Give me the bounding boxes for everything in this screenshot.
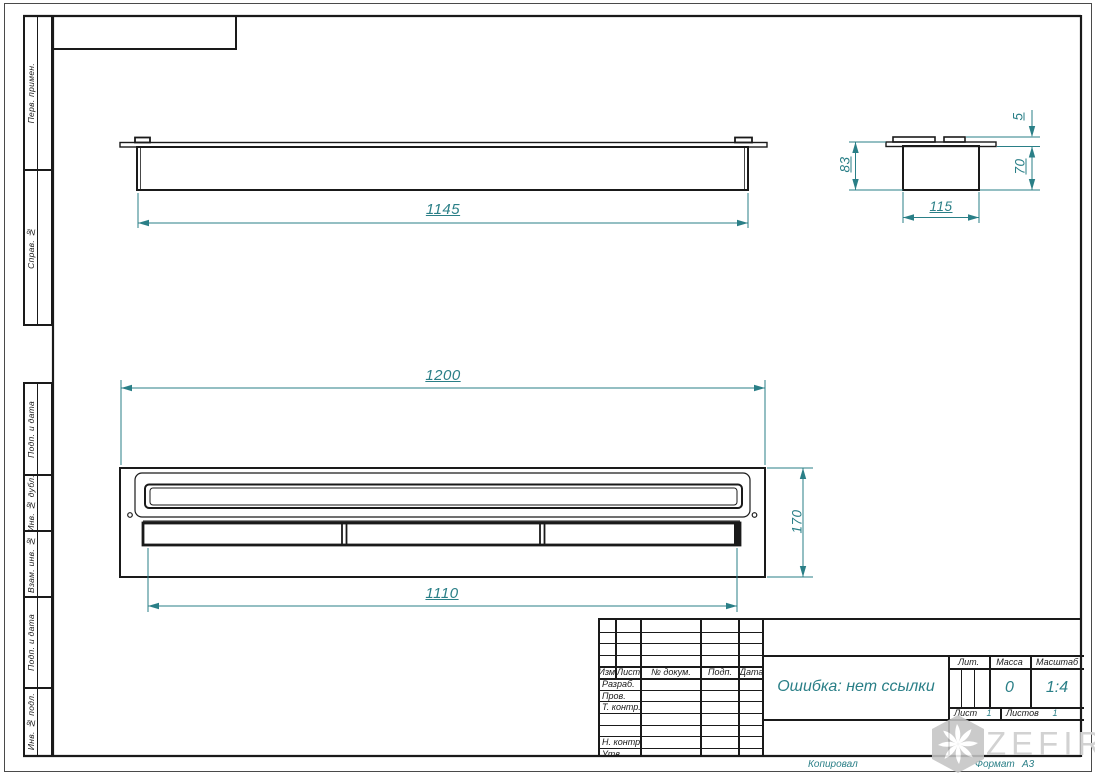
- dim-text-side-body-width: 115: [916, 199, 966, 214]
- dimension-70: [980, 147, 1040, 191]
- stamp-label: Инв. № дубл.: [26, 475, 36, 532]
- drawing-sheet: 1145 1200 1110 115 170 83 70 5 Перв. при…: [0, 0, 1095, 776]
- tb-sheets-value: 1: [1040, 707, 1070, 719]
- margin-stamp-sprav-no: Справ. №: [23, 169, 53, 326]
- zefire-logo-icon: [929, 714, 987, 774]
- dimension-5: [966, 110, 1040, 137]
- zefire-watermark-text: ZEFIRE: [986, 725, 1095, 763]
- margin-stamp-podp-data-1: Подп. и дата: [23, 382, 53, 476]
- stamp-label: Подп. и дата: [26, 401, 36, 458]
- margin-stamp-podp-data-2: Подп. и дата: [23, 596, 53, 689]
- dim-text-plan-depth: 170: [790, 502, 805, 542]
- tb-col-data: Дата: [739, 666, 764, 678]
- tb-row-utv: Утв.: [600, 748, 642, 759]
- stamp-label: Перв. примен.: [26, 63, 36, 123]
- tb-row-razrab: Разраб.: [600, 678, 642, 690]
- margin-stamp-inv-podl: Инв. № подл.: [23, 687, 53, 757]
- tb-mass-value: 0: [989, 668, 1030, 707]
- tb-col-docnum: № докум.: [641, 666, 701, 678]
- tb-row-prov: Пров.: [600, 690, 642, 701]
- dimension-1110: [148, 548, 737, 612]
- dim-text-side-body-height: 70: [1013, 147, 1028, 187]
- stamp-label: Справ. №: [26, 227, 36, 269]
- tb-col-podp: Подп.: [701, 666, 739, 678]
- dim-text-plan-width: 1200: [408, 367, 478, 384]
- tb-mass-label: Масса: [989, 655, 1030, 668]
- side-view: [886, 137, 996, 190]
- tb-sheets-label: Листов: [1004, 707, 1044, 719]
- dimension-83: [849, 142, 903, 190]
- tb-row-nkontr: Н. контр.: [600, 736, 642, 748]
- dim-text-front-width: 1145: [408, 201, 478, 218]
- tb-lit-label: Лит.: [948, 655, 989, 668]
- stamp-label: Инв. № подл.: [26, 693, 36, 750]
- tb-col-izm: Изм.: [600, 666, 616, 678]
- margin-stamp-vzam-inv: Взам. инв. №: [23, 530, 53, 598]
- dimension-1200: [121, 380, 765, 465]
- stamp-label: Подп. и дата: [26, 614, 36, 671]
- margin-stamp-inv-dubl: Инв. № дубл.: [23, 474, 53, 532]
- tb-scale-label: Масштаб: [1030, 655, 1084, 668]
- designation-box: [53, 15, 237, 50]
- plan-view: [120, 468, 765, 577]
- dim-text-side-total-height: 83: [838, 145, 853, 185]
- tb-row-tkontr: Т. контр.: [600, 701, 642, 713]
- tb-col-list: Лист: [616, 666, 641, 678]
- dim-text-side-lip-height: 5: [1011, 97, 1026, 137]
- tb-scale-value: 1:4: [1030, 668, 1084, 707]
- copy-label: Копировал: [808, 759, 858, 770]
- dim-text-lid-width: 1110: [407, 585, 477, 602]
- tb-doc-name: Ошибка: нет ссылки: [764, 655, 948, 719]
- margin-stamp-perv-primen: Перв. примен.: [23, 15, 53, 171]
- front-view: [120, 138, 767, 191]
- stamp-label: Взам. инв. №: [26, 536, 36, 593]
